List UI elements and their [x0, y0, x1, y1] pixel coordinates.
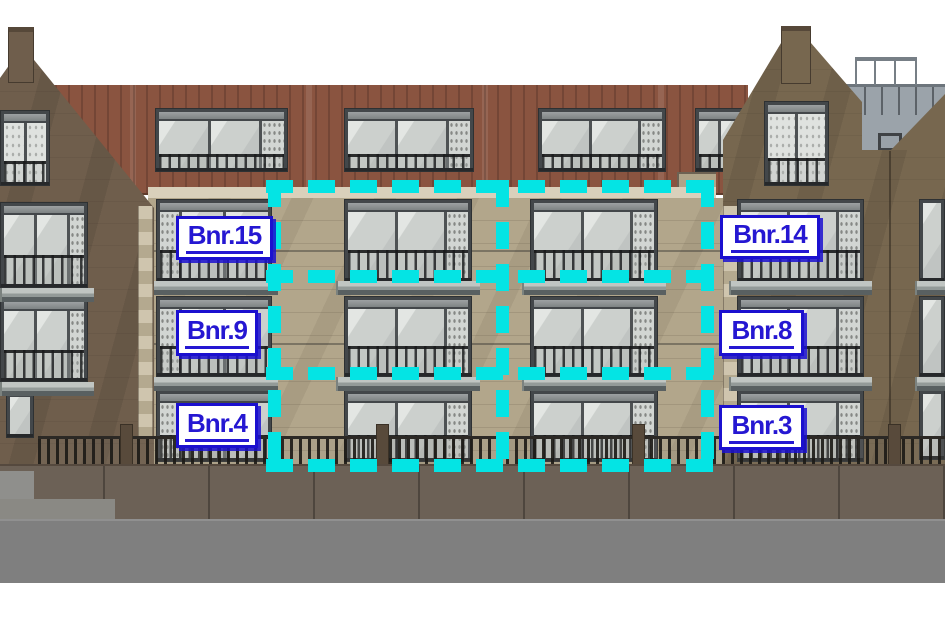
blind-box	[741, 203, 860, 210]
apartment-link-label: Bnr.4	[185, 410, 249, 442]
apartment-link-label: Bnr.14	[731, 221, 809, 253]
fence-post	[888, 424, 901, 467]
apartment-link-label: Bnr.8	[729, 317, 793, 349]
balcony-railing	[4, 255, 84, 284]
selection-grid-line	[266, 459, 715, 472]
blind-box	[4, 302, 84, 309]
window-glass	[542, 121, 662, 168]
garden-wall	[0, 464, 945, 519]
window-glass	[923, 300, 941, 373]
blind-box	[160, 394, 268, 401]
selection-grid-line	[701, 180, 714, 472]
apartment-link-label: Bnr.3	[729, 412, 793, 444]
blind-box	[159, 112, 284, 119]
window-glass	[768, 114, 825, 182]
selection-grid-line	[496, 180, 509, 472]
window	[155, 108, 288, 172]
window	[344, 108, 474, 172]
balcony-slab	[729, 281, 872, 295]
fence-post	[120, 424, 133, 467]
blind-box	[4, 114, 46, 121]
window-glass	[159, 121, 284, 168]
apartment-cell-bnr3[interactable]	[509, 380, 701, 459]
apartment-cell-bnr9[interactable]	[281, 283, 496, 367]
window-glass	[4, 311, 84, 378]
balcony-slab	[148, 377, 278, 391]
ground-strip	[0, 519, 945, 583]
left-chimney	[8, 27, 34, 83]
apartment-link-label: Bnr.9	[185, 317, 249, 349]
blind-box	[741, 300, 860, 307]
pavement-step	[0, 499, 115, 519]
balcony-slab	[0, 382, 94, 396]
window-glass	[348, 121, 470, 168]
selection-grid-line	[266, 367, 715, 380]
blind-box	[160, 300, 268, 307]
balcony-slab	[915, 281, 945, 295]
blind-box	[741, 394, 860, 401]
blind-box	[4, 206, 84, 213]
window	[0, 110, 50, 186]
apartment-cell-bnr4[interactable]	[281, 380, 496, 459]
balcony-slab	[148, 281, 278, 295]
blind-box	[768, 105, 825, 112]
apartment-cell-bnr8[interactable]	[509, 283, 701, 367]
blind-box	[348, 112, 470, 119]
apartment-link-label: Bnr.15	[186, 222, 264, 254]
apartment-cell-bnr14[interactable]	[509, 193, 701, 270]
right-chimney	[781, 26, 811, 84]
blind-box	[160, 203, 268, 210]
window	[0, 202, 88, 288]
apartment-link-bnr15[interactable]: Bnr.15	[176, 216, 273, 260]
balcony-railing	[348, 154, 470, 168]
balcony-railing	[4, 350, 84, 378]
quoin-strip	[138, 206, 153, 436]
window-glass	[4, 123, 46, 182]
window-glass	[923, 203, 941, 278]
apartment-link-bnr14[interactable]: Bnr.14	[720, 215, 820, 259]
balcony-railing	[768, 158, 825, 182]
window	[764, 101, 829, 186]
window	[0, 298, 88, 382]
selection-grid-line	[266, 180, 715, 193]
balcony-slab	[729, 377, 872, 391]
balcony-railing	[542, 154, 662, 168]
window	[538, 108, 666, 172]
balcony-railing	[4, 161, 46, 182]
window-glass	[10, 397, 30, 434]
window-glass	[4, 215, 84, 284]
apartment-link-bnr9[interactable]: Bnr.9	[176, 310, 258, 356]
window	[919, 296, 945, 377]
window	[919, 199, 945, 282]
balcony-slab	[915, 377, 945, 391]
window-pane	[923, 203, 941, 278]
window	[6, 393, 34, 438]
building-elevation: Bnr.15 Bnr.14 Bnr.9 Bnr.8 Bnr.4 Bnr.3	[0, 0, 945, 625]
blind-box	[542, 112, 662, 119]
tower-corner-line	[889, 151, 891, 437]
apartment-link-bnr3[interactable]: Bnr.3	[719, 405, 804, 450]
apartment-cell-bnr15[interactable]	[281, 193, 496, 270]
balcony-railing	[159, 154, 284, 168]
window-pane	[923, 300, 941, 373]
apartment-link-bnr8[interactable]: Bnr.8	[719, 310, 804, 356]
rooftop-railing	[855, 57, 917, 85]
apartment-link-bnr4[interactable]: Bnr.4	[176, 403, 258, 448]
balcony-slab	[0, 288, 94, 302]
window-pane	[10, 397, 30, 434]
selection-grid-line	[266, 270, 715, 283]
